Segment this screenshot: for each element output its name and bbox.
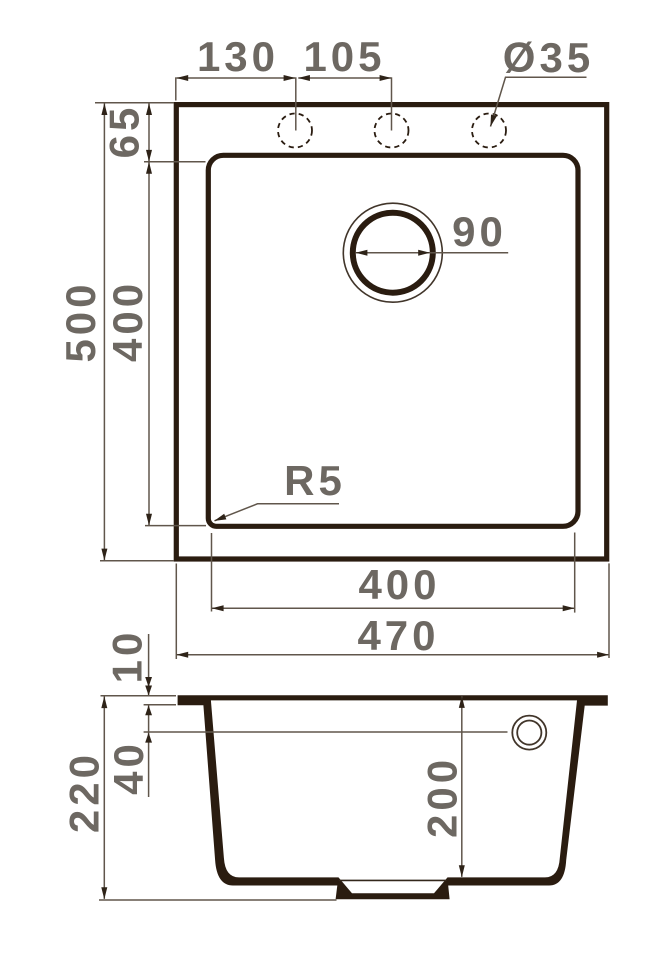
svg-text:400: 400 [358, 561, 440, 608]
svg-text:R5: R5 [284, 457, 346, 504]
svg-text:400: 400 [104, 280, 151, 362]
svg-text:65: 65 [101, 104, 148, 159]
svg-text:10: 10 [104, 629, 151, 684]
svg-text:105: 105 [303, 33, 385, 80]
svg-text:40: 40 [105, 740, 152, 795]
svg-text:500: 500 [57, 280, 104, 362]
svg-text:Ø35: Ø35 [503, 34, 594, 81]
svg-text:220: 220 [61, 751, 108, 833]
svg-text:130: 130 [197, 33, 279, 80]
svg-text:200: 200 [419, 756, 466, 838]
svg-text:90: 90 [452, 208, 507, 255]
svg-text:470: 470 [357, 612, 439, 659]
